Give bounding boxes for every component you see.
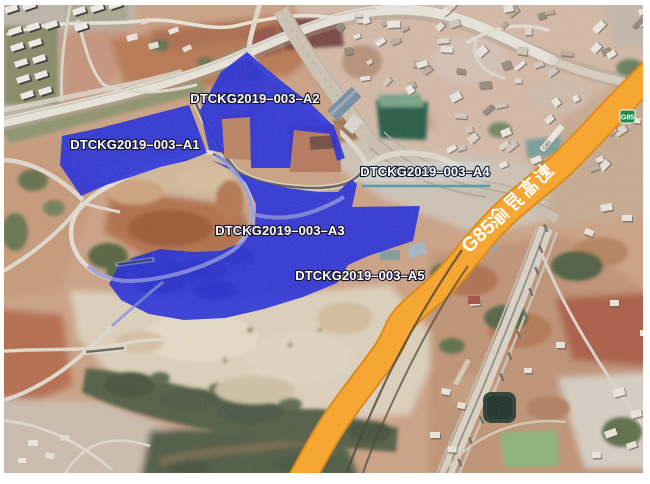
- svg-text:DTCKG2019–003–A2: DTCKG2019–003–A2: [190, 91, 320, 106]
- svg-text:DTCKG2019–003–A1: DTCKG2019–003–A1: [70, 137, 200, 152]
- svg-text:DTCKG2019–003–A4: DTCKG2019–003–A4: [360, 164, 490, 179]
- svg-text:G85: G85: [621, 115, 634, 122]
- svg-text:DTCKG2019–003–A3: DTCKG2019–003–A3: [215, 223, 345, 238]
- svg-text:DTCKG2019–003–A5: DTCKG2019–003–A5: [295, 268, 425, 283]
